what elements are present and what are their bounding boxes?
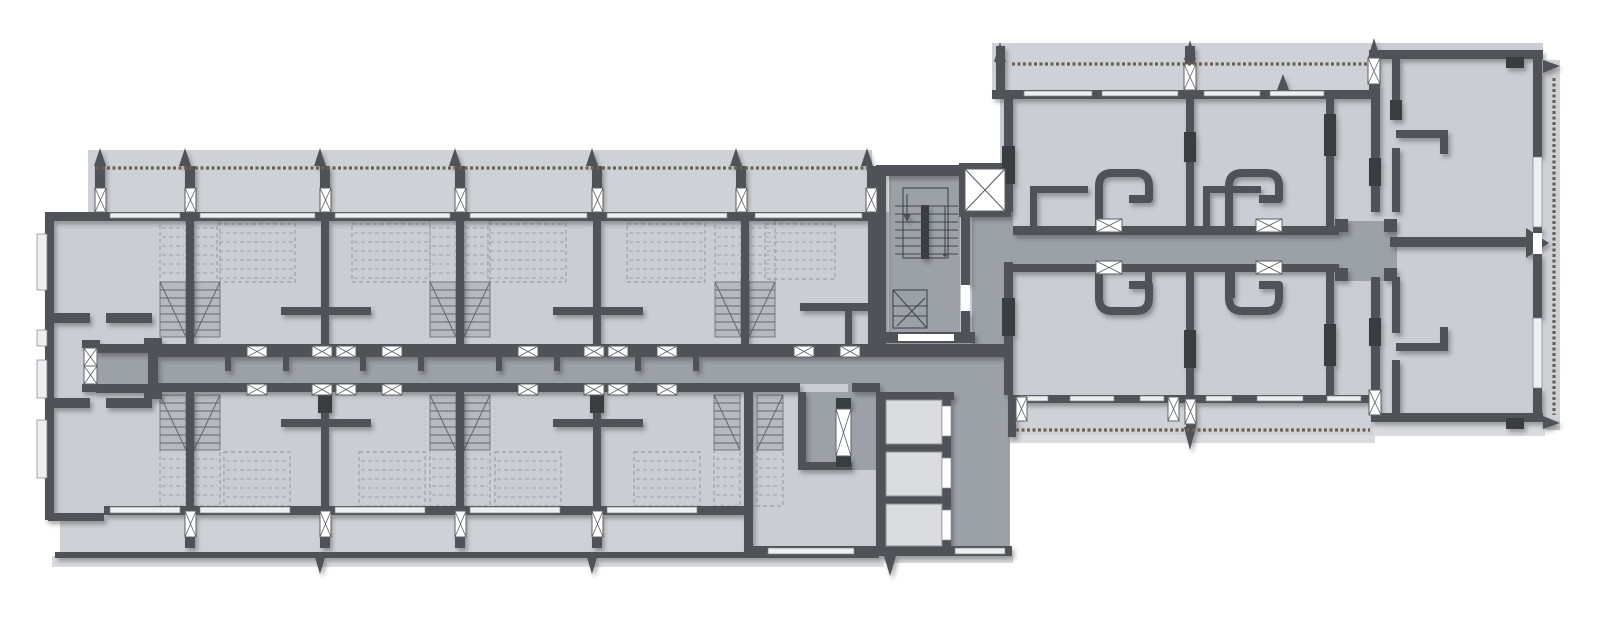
balcony-floor [88, 150, 872, 212]
door-gap [1533, 233, 1542, 254]
wall [456, 219, 464, 344]
wall [1371, 84, 1380, 212]
wall [186, 219, 194, 344]
window-strip [607, 507, 697, 513]
elevator-door [942, 406, 951, 436]
wall-pier [836, 398, 851, 409]
wall-pier [1390, 100, 1402, 120]
wall [1440, 327, 1448, 343]
window-strip [1102, 91, 1178, 96]
wall-pier [921, 205, 929, 259]
window-strip [1257, 396, 1303, 401]
wall [456, 392, 464, 506]
elevator-car [886, 452, 942, 496]
wall [1392, 360, 1400, 413]
window-strip [768, 548, 854, 554]
window-strip [955, 548, 1005, 554]
window-strip [1206, 396, 1232, 401]
wall [55, 552, 879, 558]
wall [321, 219, 329, 344]
shaft-layer [965, 169, 1005, 211]
wall [281, 419, 371, 427]
wall [96, 344, 150, 353]
wall-pier [1002, 298, 1015, 336]
balcony-floor [992, 43, 1373, 90]
wall [281, 307, 371, 315]
wall [1384, 219, 1397, 232]
window-strip [607, 213, 727, 218]
wall-pier [1506, 57, 1524, 68]
wall-pier [1184, 132, 1196, 162]
wall [82, 384, 100, 392]
wall [150, 344, 1010, 357]
wall [876, 392, 886, 550]
window-strip [37, 420, 47, 478]
wall-pier [1369, 318, 1381, 346]
wall [1030, 186, 1088, 193]
wall-pier [1324, 324, 1336, 366]
wall [886, 496, 942, 504]
window-strip [37, 330, 47, 346]
door-gap [961, 285, 970, 311]
wall-pier [836, 456, 851, 467]
wall [553, 307, 643, 315]
wall [82, 340, 100, 348]
wall [800, 303, 874, 311]
window-strip [335, 507, 425, 513]
window-strip [755, 213, 862, 218]
wall [1533, 254, 1542, 318]
wall [1390, 237, 1528, 247]
window-strip [1533, 318, 1542, 388]
wall [886, 444, 942, 452]
floor-plan-svg [0, 0, 1600, 640]
window-strip [1140, 396, 1164, 401]
wall [868, 219, 876, 344]
wall [106, 398, 152, 408]
stairwell-dot [943, 253, 947, 257]
window-strip [1270, 91, 1324, 96]
wall-pier [1506, 418, 1524, 429]
wall-pier [1369, 158, 1381, 186]
wall [1008, 395, 1016, 437]
wall [1533, 57, 1542, 157]
wall [798, 392, 806, 468]
window-strip [200, 213, 315, 218]
wall [1440, 138, 1448, 154]
wall [1392, 148, 1400, 212]
window-strip [37, 234, 47, 290]
floor-plan [0, 0, 1600, 640]
wall [283, 357, 289, 371]
wall [496, 357, 502, 371]
window-strip [200, 507, 290, 513]
elevator-car [886, 504, 942, 546]
room-floor [755, 470, 880, 548]
wall-pier [1324, 114, 1336, 156]
wall [1013, 226, 1339, 235]
wall [635, 357, 641, 371]
wall [96, 384, 150, 393]
wall [693, 357, 699, 371]
window-strip [110, 213, 180, 218]
wall [1013, 264, 1339, 272]
wall [1533, 227, 1542, 233]
window-strip [37, 360, 47, 398]
wall [744, 392, 753, 550]
window-strip [470, 213, 587, 218]
window-strip [1024, 91, 1092, 96]
elevator-car [886, 400, 942, 444]
wall [418, 357, 424, 371]
wall [852, 383, 880, 392]
wall [225, 357, 231, 371]
elevator-door [942, 510, 951, 540]
wall [360, 357, 366, 371]
wall [106, 313, 152, 323]
door-gap [898, 334, 954, 341]
wall [1396, 130, 1448, 138]
wall [48, 513, 104, 521]
window-strip [1533, 157, 1542, 227]
wall [1335, 219, 1348, 232]
window-strip [335, 213, 450, 218]
window-strip [1204, 91, 1260, 96]
wall [1326, 90, 1334, 228]
corridor-floor [96, 352, 150, 385]
wall [554, 357, 560, 371]
corridor-floor [1013, 235, 1339, 266]
wall-pier [1184, 330, 1196, 368]
wall [845, 311, 852, 344]
window-strip [1327, 396, 1361, 401]
wall [1396, 343, 1448, 351]
window-strip [110, 507, 180, 513]
wall [1335, 268, 1348, 281]
window-strip [470, 507, 560, 513]
wall [48, 313, 90, 323]
wall [593, 219, 601, 344]
wall [553, 419, 643, 427]
elevator-door [942, 458, 951, 488]
wall [186, 392, 194, 506]
wall [48, 398, 90, 408]
elevator-layer [886, 400, 951, 546]
wall [1392, 277, 1400, 333]
wall [741, 219, 749, 344]
window-strip [1070, 396, 1114, 401]
